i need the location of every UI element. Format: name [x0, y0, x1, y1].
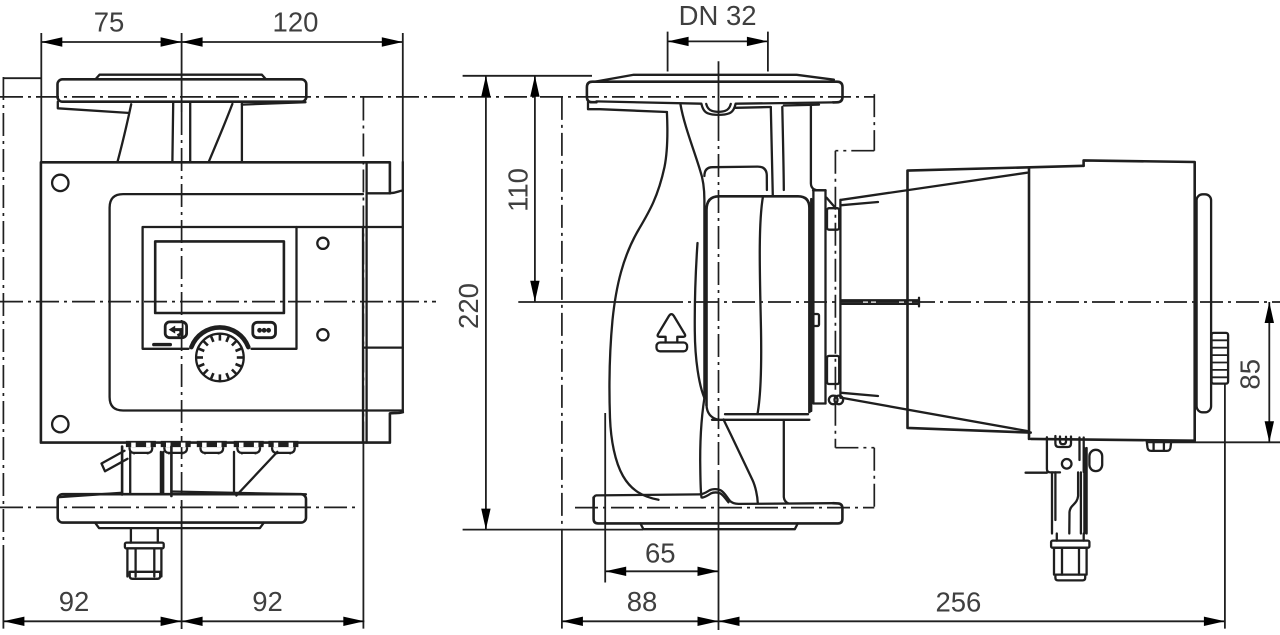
svg-text:DN 32: DN 32 [679, 0, 757, 31]
svg-text:220: 220 [453, 283, 484, 329]
svg-text:256: 256 [935, 587, 981, 618]
svg-text:110: 110 [503, 168, 534, 212]
svg-text:92: 92 [59, 586, 90, 617]
svg-text:92: 92 [252, 586, 283, 617]
svg-text:88: 88 [627, 586, 658, 617]
svg-text:75: 75 [94, 7, 125, 38]
svg-text:85: 85 [1235, 359, 1266, 390]
svg-text:65: 65 [645, 538, 676, 569]
svg-text:120: 120 [273, 7, 319, 38]
